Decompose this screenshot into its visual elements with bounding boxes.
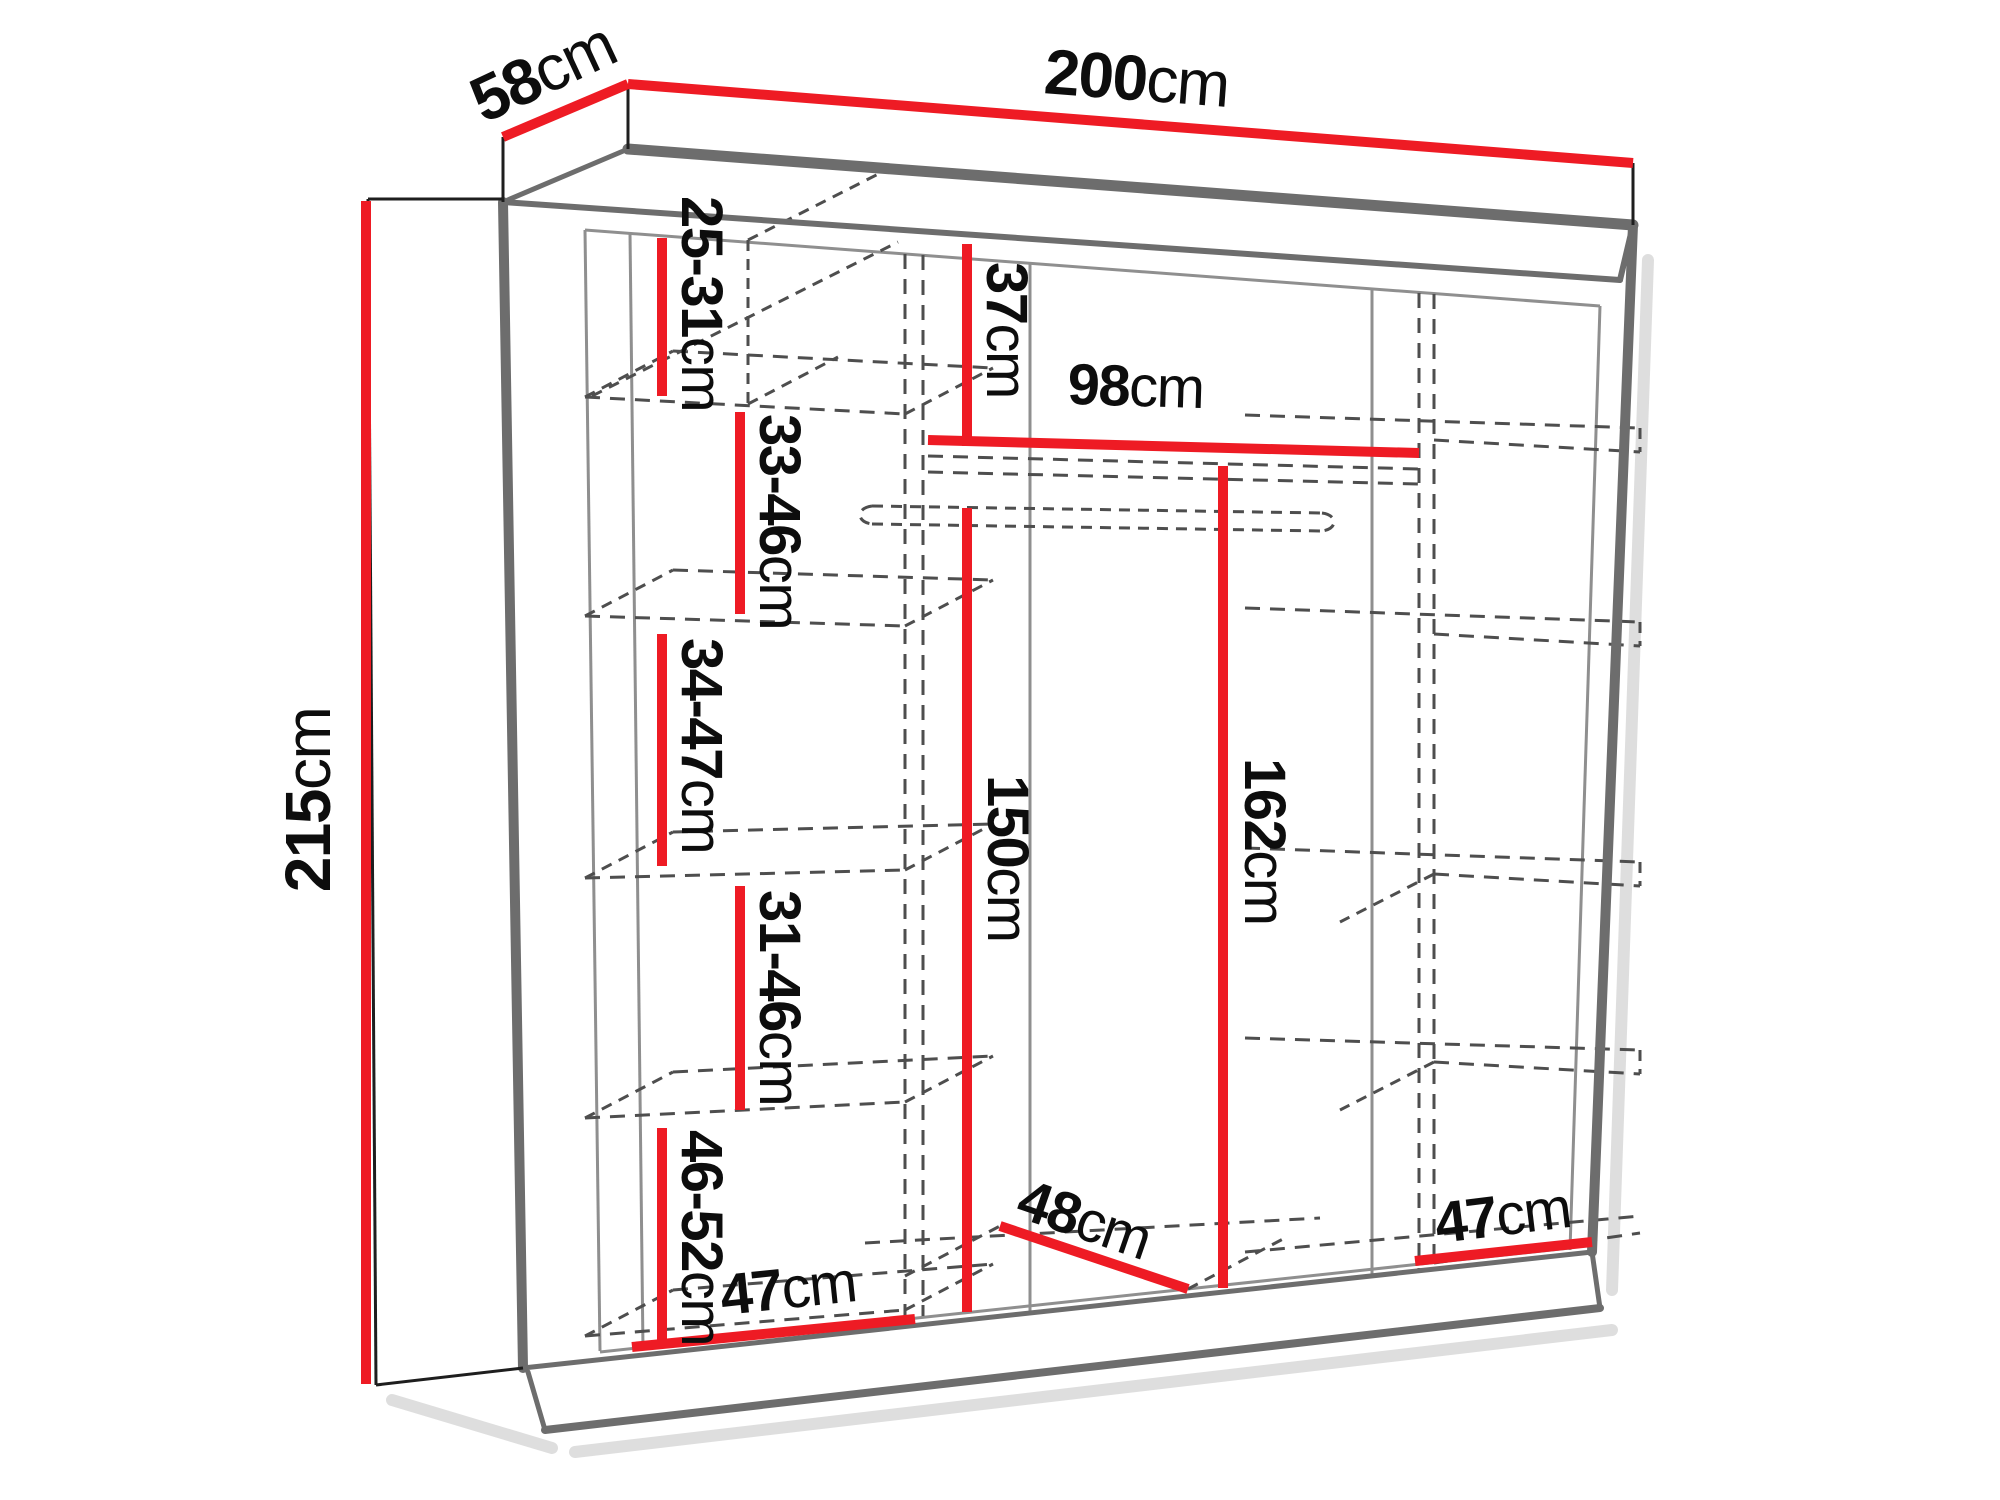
edge-plinth-left xyxy=(528,1372,545,1430)
dim-line-middle-width xyxy=(928,440,1419,453)
left-shelf-3 xyxy=(585,824,993,878)
label-left-gap-3: 34-47cm xyxy=(669,638,734,853)
wardrobe-dimension-diagram: 58cm 200cm 215cm 25-31cm 33-46cm 34-47cm… xyxy=(0,0,2000,1500)
right-shelf-4 xyxy=(1245,1038,1640,1110)
left-panel-bottom-edge xyxy=(376,1368,523,1385)
label-hanging-left: 150cm xyxy=(975,775,1040,942)
label-hanging-right: 162cm xyxy=(1232,758,1297,925)
edge-plinth-right xyxy=(1592,1252,1600,1308)
edge-front-left xyxy=(503,202,523,1368)
right-shelf-2 xyxy=(1245,608,1640,646)
label-left-gap-top: 25-31cm xyxy=(669,196,734,411)
hanging-rod xyxy=(860,506,1334,531)
middle-top-shelf xyxy=(928,456,1419,484)
label-width: 200cm xyxy=(1042,35,1231,121)
label-left-gap-4: 31-46cm xyxy=(747,890,812,1105)
label-middle-width: 98cm xyxy=(1067,352,1205,421)
shadow-bottom xyxy=(575,1330,1612,1452)
diagram-canvas: 58cm 200cm 215cm 25-31cm 33-46cm 34-47cm… xyxy=(0,0,2000,1500)
label-left-gap-2: 33-46cm xyxy=(747,414,812,629)
hidden-structure xyxy=(585,163,1640,1336)
partition-right-hidden xyxy=(1419,293,1434,1270)
shadow-bottom-left xyxy=(392,1400,552,1448)
label-height: 215cm xyxy=(272,708,344,893)
label-middle-top-gap: 37cm xyxy=(974,262,1039,398)
